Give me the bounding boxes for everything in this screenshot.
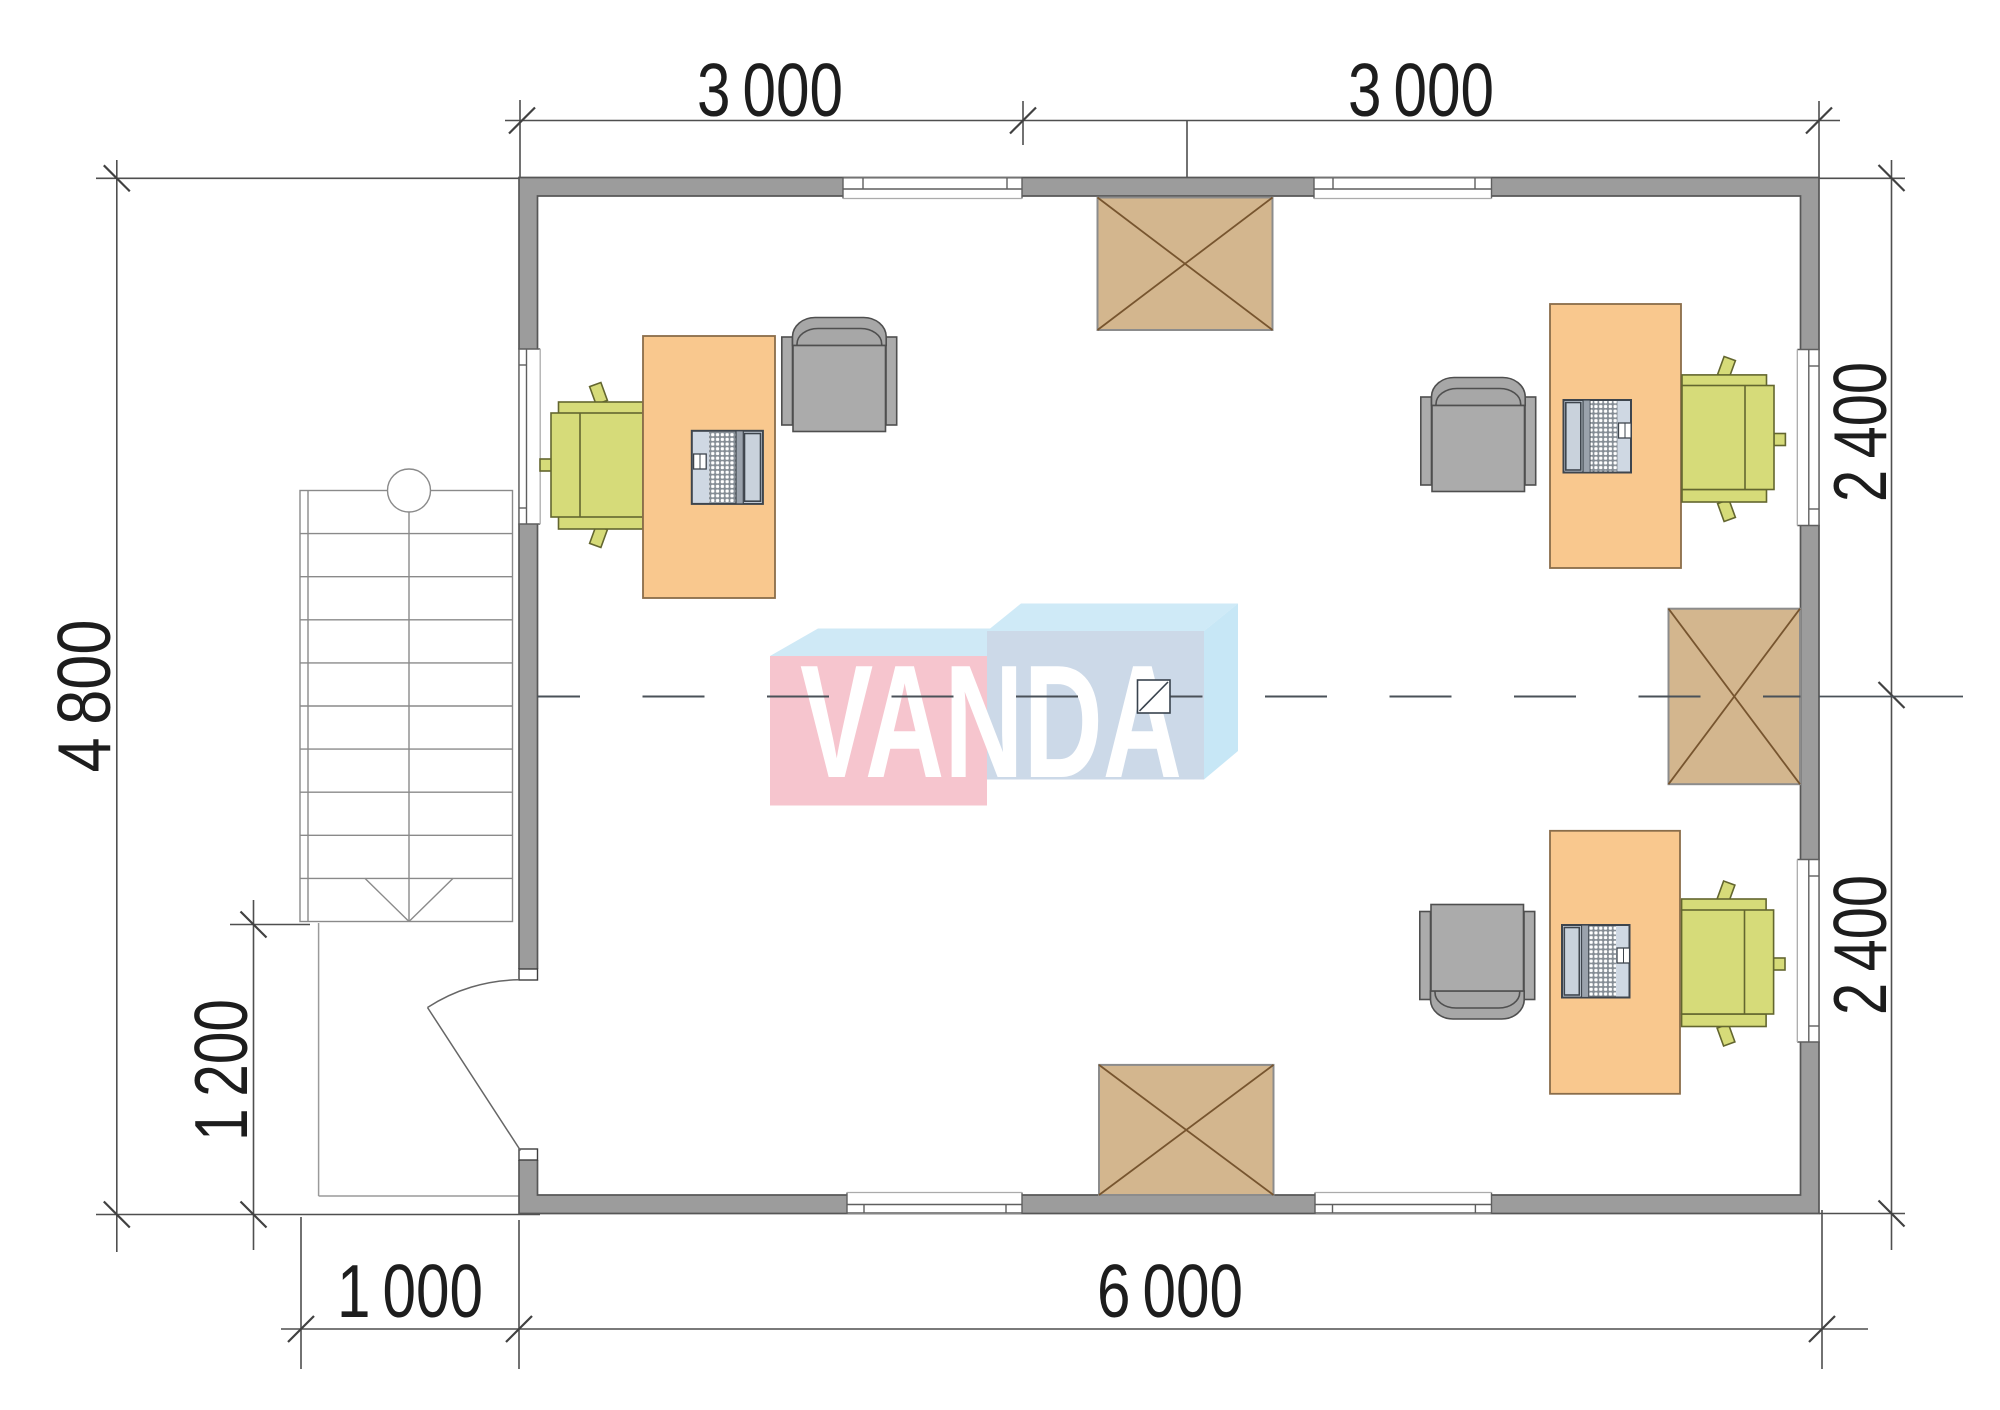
svg-text:3 000: 3 000: [697, 48, 843, 132]
svg-text:1 000: 1 000: [337, 1249, 483, 1333]
svg-text:4 800: 4 800: [42, 620, 126, 773]
svg-text:1 200: 1 200: [179, 999, 263, 1141]
svg-text:6 000: 6 000: [1097, 1249, 1243, 1333]
svg-text:VANDA: VANDA: [800, 632, 1182, 812]
svg-text:3 000: 3 000: [1348, 48, 1494, 132]
svg-text:2 400: 2 400: [1818, 875, 1902, 1015]
svg-text:2 400: 2 400: [1818, 362, 1902, 502]
